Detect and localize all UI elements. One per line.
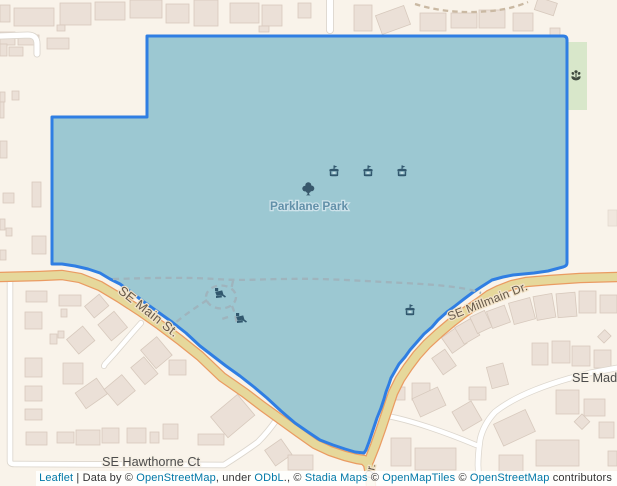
svg-text:Parklane Park: Parklane Park xyxy=(270,199,348,213)
svg-text:SE Madiso: SE Madiso xyxy=(572,371,617,385)
svg-text:SE Hawthorne Ct: SE Hawthorne Ct xyxy=(102,455,200,469)
